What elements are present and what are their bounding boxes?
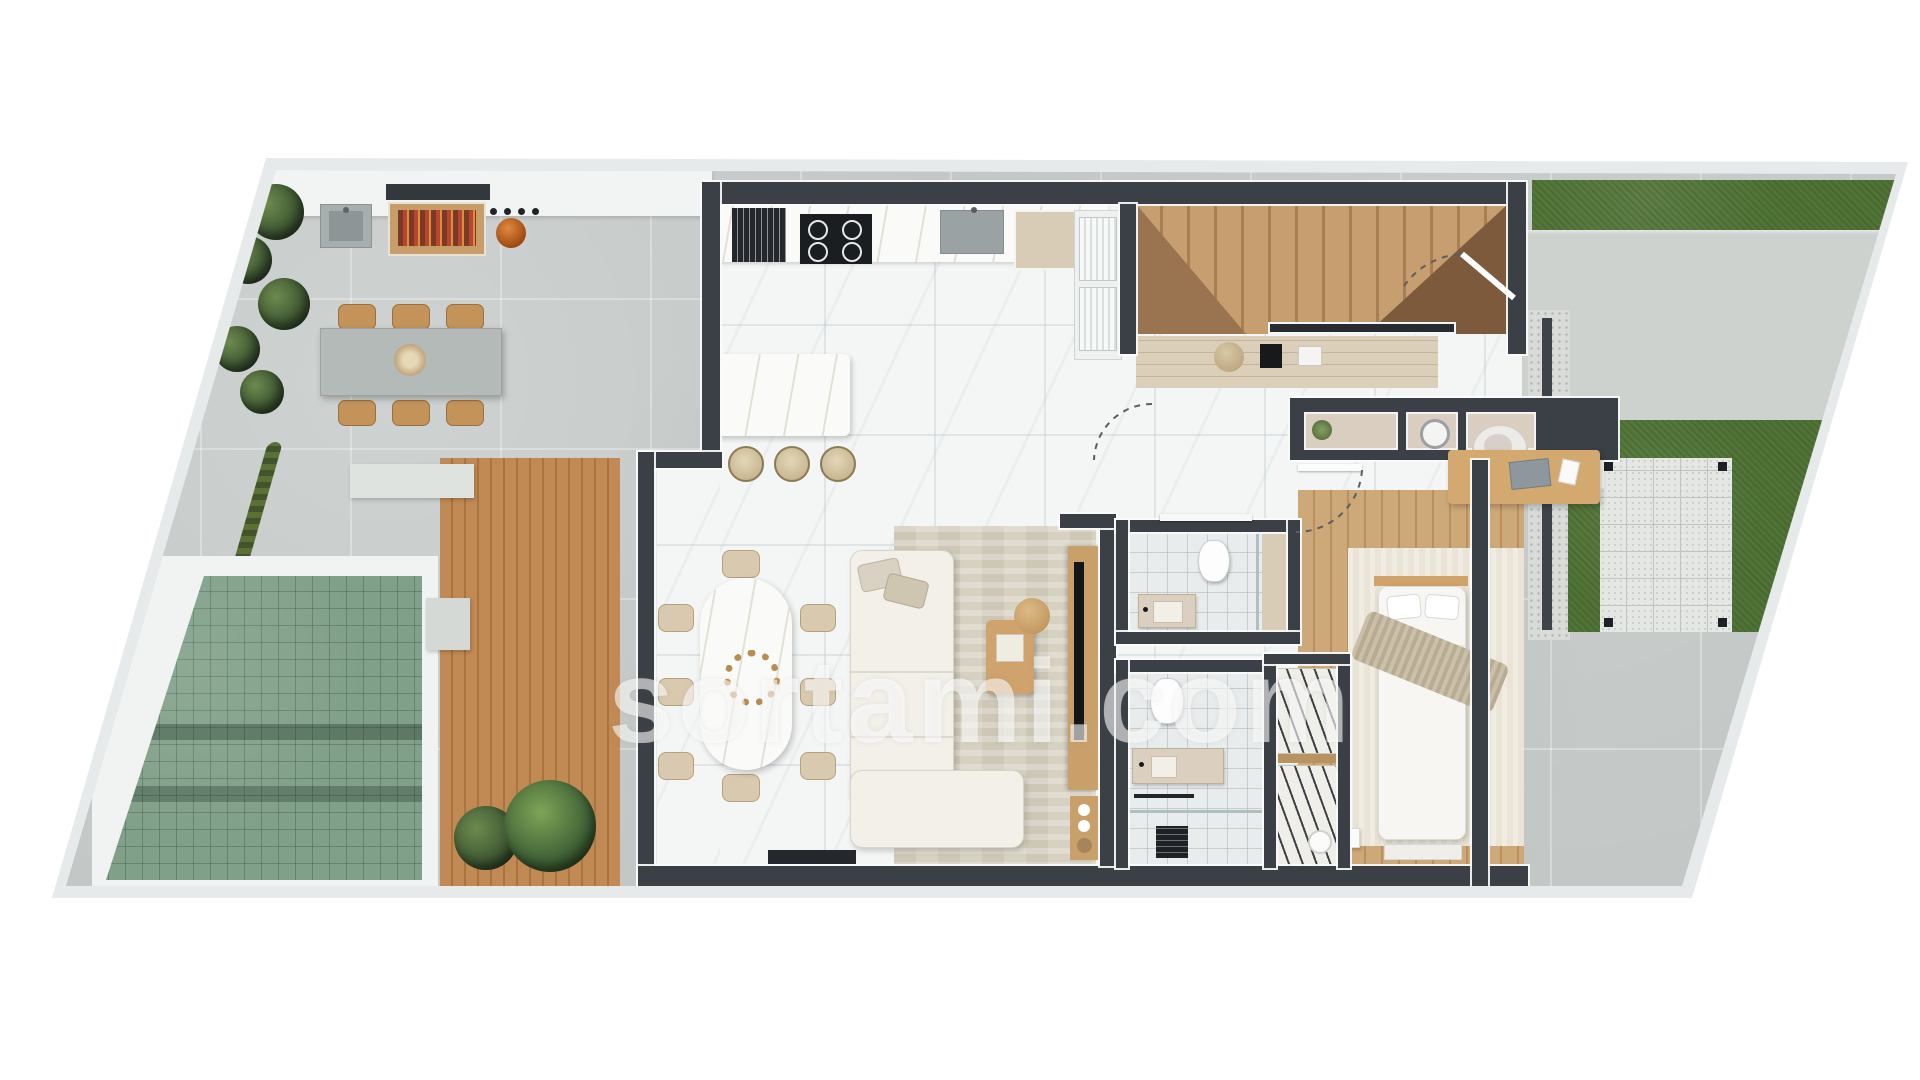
- door-swing-arcs: [52, 158, 1910, 898]
- property-plot: sortami.com: [52, 158, 1910, 898]
- floor-plan-render: sortami.com: [0, 0, 1920, 1080]
